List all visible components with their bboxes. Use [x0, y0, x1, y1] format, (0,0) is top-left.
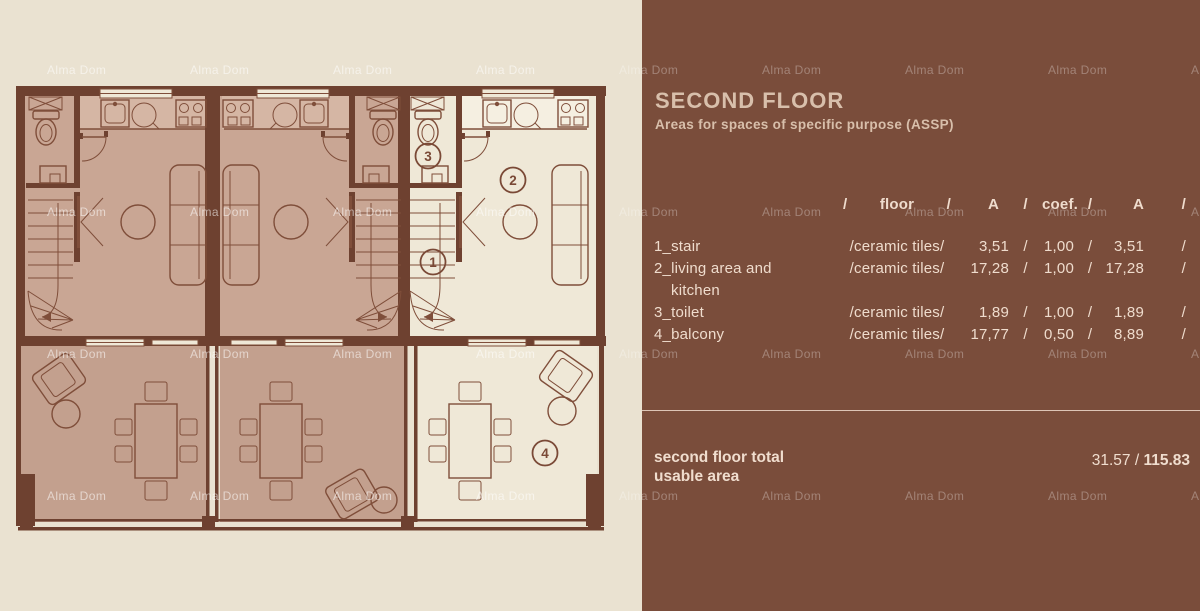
total-label: second floor total usable area: [654, 448, 784, 486]
row-slash: /: [1146, 236, 1200, 258]
header-underline: [642, 410, 1200, 411]
info-panel: SECOND FLOOR Areas for spaces of specifi…: [642, 0, 1200, 611]
row-result: 17,28: [1104, 258, 1146, 280]
row-result: 8,89: [1104, 324, 1146, 346]
table-rows: 1_stair /ceramic tiles/ 3,51 / 1,00 / 3,…: [642, 216, 1200, 346]
row-slash: /: [1146, 324, 1200, 346]
row-area: 1,89: [957, 302, 1009, 324]
header-slash: /: [1009, 194, 1042, 216]
table-row: 2_living area andkitchen /ceramic tiles/…: [642, 258, 1200, 302]
header-slash: /: [1076, 194, 1104, 216]
row-material: /ceramic tiles/: [837, 302, 957, 324]
table-row: 3_toilet /ceramic tiles/ 1,89 / 1,00 / 1…: [642, 302, 1200, 324]
row-slash: /: [1076, 236, 1104, 258]
row-coef: 1,00: [1042, 236, 1076, 258]
row-slash: /: [1009, 236, 1042, 258]
row-slash: /: [1009, 324, 1042, 346]
row-area: 3,51: [957, 236, 1009, 258]
row-name: 2_living area andkitchen: [654, 258, 837, 302]
row-material: /ceramic tiles/: [837, 324, 957, 346]
row-slash: /: [1076, 302, 1104, 324]
row-result: 3,51: [1104, 236, 1146, 258]
svg-text:2: 2: [509, 173, 517, 188]
balcony-3-floor-highlighted: [418, 346, 597, 522]
header-area2: A: [1104, 194, 1146, 216]
row-coef: 1,00: [1042, 302, 1076, 324]
row-slash: /: [1009, 302, 1042, 324]
page-title: SECOND FLOOR: [655, 88, 954, 114]
header-slash: /: [947, 194, 951, 216]
table-header: / floor / A / coef. / A /: [642, 194, 1200, 216]
table-row: 1_stair /ceramic tiles/ 3,51 / 1,00 / 3,…: [642, 236, 1200, 258]
header-floor: floor: [880, 194, 914, 216]
row-area: 17,28: [957, 258, 1009, 280]
row-result: 1,89: [1104, 302, 1146, 324]
row-name: 3_toilet: [654, 302, 837, 324]
row-slash: /: [1146, 302, 1200, 324]
balcony-2-floor: [220, 346, 404, 522]
row-coef: 0,50: [1042, 324, 1076, 346]
page-subtitle: Areas for spaces of specific purpose (AS…: [655, 117, 954, 132]
total-value: 31.57 / 115.83: [1092, 452, 1190, 470]
row-material: /ceramic tiles/: [837, 236, 957, 258]
row-name: 1_stair: [654, 236, 837, 258]
row-name: 4_balcony: [654, 324, 837, 346]
table-row: 4_balcony /ceramic tiles/ 17,77 / 0,50 /…: [642, 324, 1200, 346]
row-slash: /: [1146, 258, 1200, 280]
row-coef: 1,00: [1042, 258, 1076, 280]
header-coef: coef.: [1042, 194, 1076, 216]
unit-3-floor-highlighted: [408, 94, 598, 338]
svg-text:3: 3: [424, 149, 432, 164]
row-slash: /: [1076, 258, 1104, 280]
areas-table: / floor / A / coef. / A / 1_stair /ceram…: [642, 194, 1200, 346]
svg-text:4: 4: [541, 446, 549, 461]
header-slash: /: [1146, 194, 1200, 216]
balcony-1-floor: [20, 346, 206, 522]
row-area: 17,77: [957, 324, 1009, 346]
header-area: A: [957, 194, 1009, 216]
row-material: /ceramic tiles/: [837, 258, 957, 280]
row-slash: /: [1009, 258, 1042, 280]
floorplan-sheet: 1 2 3 4 SECOND FLOOR Areas for spaces of…: [0, 0, 1200, 611]
svg-text:1: 1: [429, 255, 437, 270]
row-slash: /: [1076, 324, 1104, 346]
header-slash: /: [843, 194, 847, 216]
